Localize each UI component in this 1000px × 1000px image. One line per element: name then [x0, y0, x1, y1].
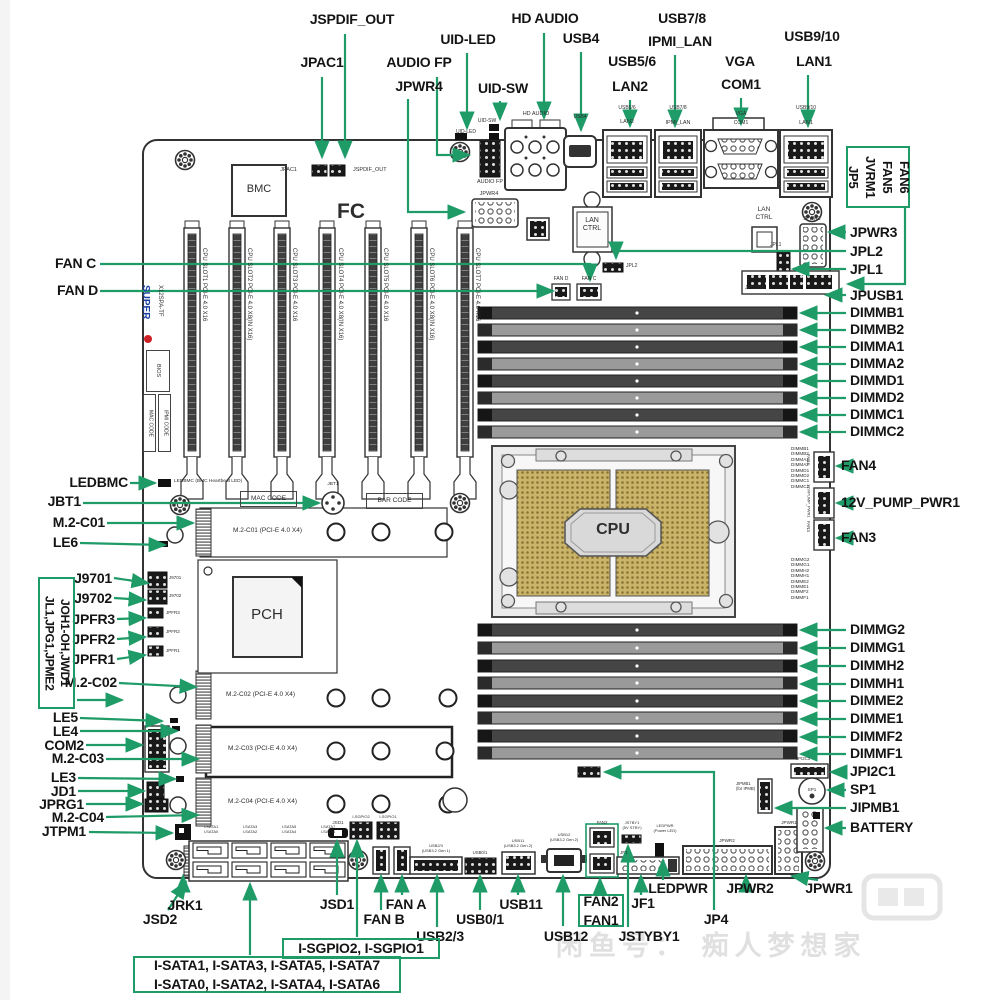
usb56-lan2-port [603, 130, 651, 197]
battery-header [797, 808, 823, 852]
fan1-header [590, 854, 614, 873]
jp4-jumper [578, 767, 600, 777]
usb910-lan1-port [780, 130, 832, 197]
j9702-header [148, 590, 167, 604]
jsd1-connector [328, 828, 348, 838]
sp1-speaker [799, 778, 825, 804]
jf1-header [617, 857, 679, 874]
watermark-logo [864, 876, 940, 918]
rear-io-ports [505, 118, 832, 197]
usb12-connector [541, 849, 587, 872]
pch-chip [233, 577, 302, 657]
ledbmc-led [158, 479, 171, 487]
fan-c-header [577, 284, 601, 300]
small-chip [527, 218, 549, 240]
m2-c01-area [200, 508, 447, 557]
com2-header [145, 726, 169, 772]
uid-buttons [455, 124, 499, 140]
usb01-header [465, 858, 496, 874]
jipmb1-connector [758, 779, 772, 813]
i-sgpio2-header [350, 822, 372, 839]
logo-red-dot [144, 335, 152, 343]
i-sgpio1-header [377, 822, 399, 839]
fan-d-header [552, 284, 570, 300]
j9701-header [148, 572, 167, 588]
jpi2c1-header [791, 764, 828, 778]
jpwr2-connector [683, 846, 772, 874]
fan4-connector [814, 452, 834, 482]
audio-fp-header [480, 141, 500, 177]
jd1-header [147, 782, 164, 798]
usb78-ipmilan-port [655, 130, 701, 197]
jpwr3-connector [800, 224, 826, 267]
jstby1-jumper [622, 835, 641, 843]
ledpwr-led [655, 843, 664, 858]
jpwr4-connector [472, 199, 518, 227]
jpfr1-jumper [148, 646, 163, 656]
fan2-header [590, 828, 614, 847]
jpfr3-jumper [148, 608, 163, 618]
vga-com1-port [704, 118, 778, 188]
cpu-socket [492, 446, 735, 617]
fan-a-header [394, 847, 410, 874]
jprg1-header [145, 799, 168, 812]
usb23-header [410, 857, 462, 874]
usb4-port [564, 136, 596, 167]
jrk1-hole [167, 851, 186, 870]
jpfr2-jumper [148, 627, 163, 637]
fan-b-header [373, 847, 389, 874]
bmc-chip [232, 165, 286, 216]
usb11-header [502, 852, 535, 874]
jpusb1-block [742, 271, 839, 294]
fan3-connector [814, 520, 834, 550]
hd-audio-port [505, 120, 566, 190]
pump-pwr1-connector [814, 488, 834, 518]
motherboard-layout-diagram: JPAC1JSPDIF_OUTAUDIO FPJPWR4UID-SWUID-LE… [0, 0, 1000, 1000]
board-graphic [0, 0, 1000, 1000]
jpl2-jumper [603, 263, 623, 272]
lan-ctrl-chip-right [752, 227, 777, 252]
